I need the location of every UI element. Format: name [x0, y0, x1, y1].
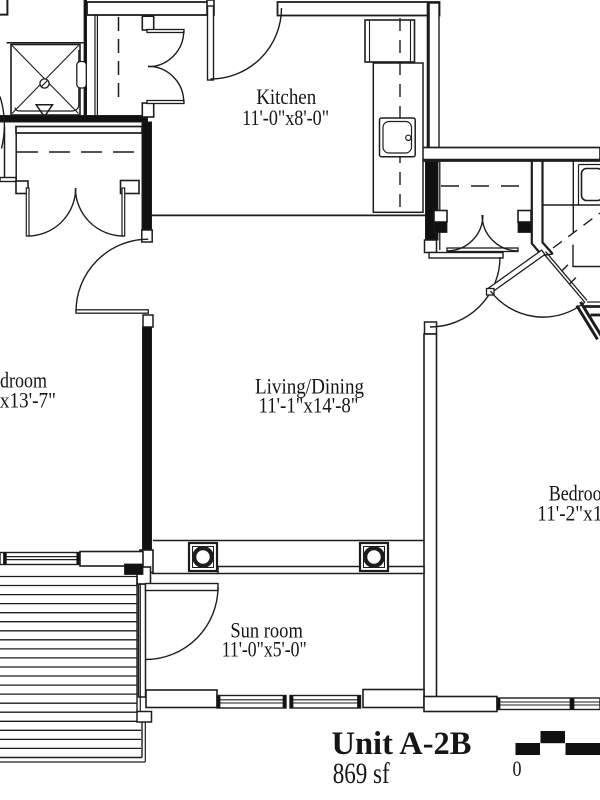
- svg-text:11'-4"x13'-7": 11'-4"x13'-7": [0, 388, 56, 413]
- svg-text:11'-2"x13'-7": 11'-2"x13'-7": [537, 501, 600, 526]
- svg-text:11'-0"x5'-0": 11'-0"x5'-0": [222, 637, 307, 662]
- svg-text:869 sf: 869 sf: [333, 757, 390, 790]
- svg-text:0: 0: [513, 756, 522, 781]
- svg-text:11'-1"x14'-8": 11'-1"x14'-8": [259, 393, 359, 418]
- svg-text:11'-0"x8'-0": 11'-0"x8'-0": [242, 105, 329, 130]
